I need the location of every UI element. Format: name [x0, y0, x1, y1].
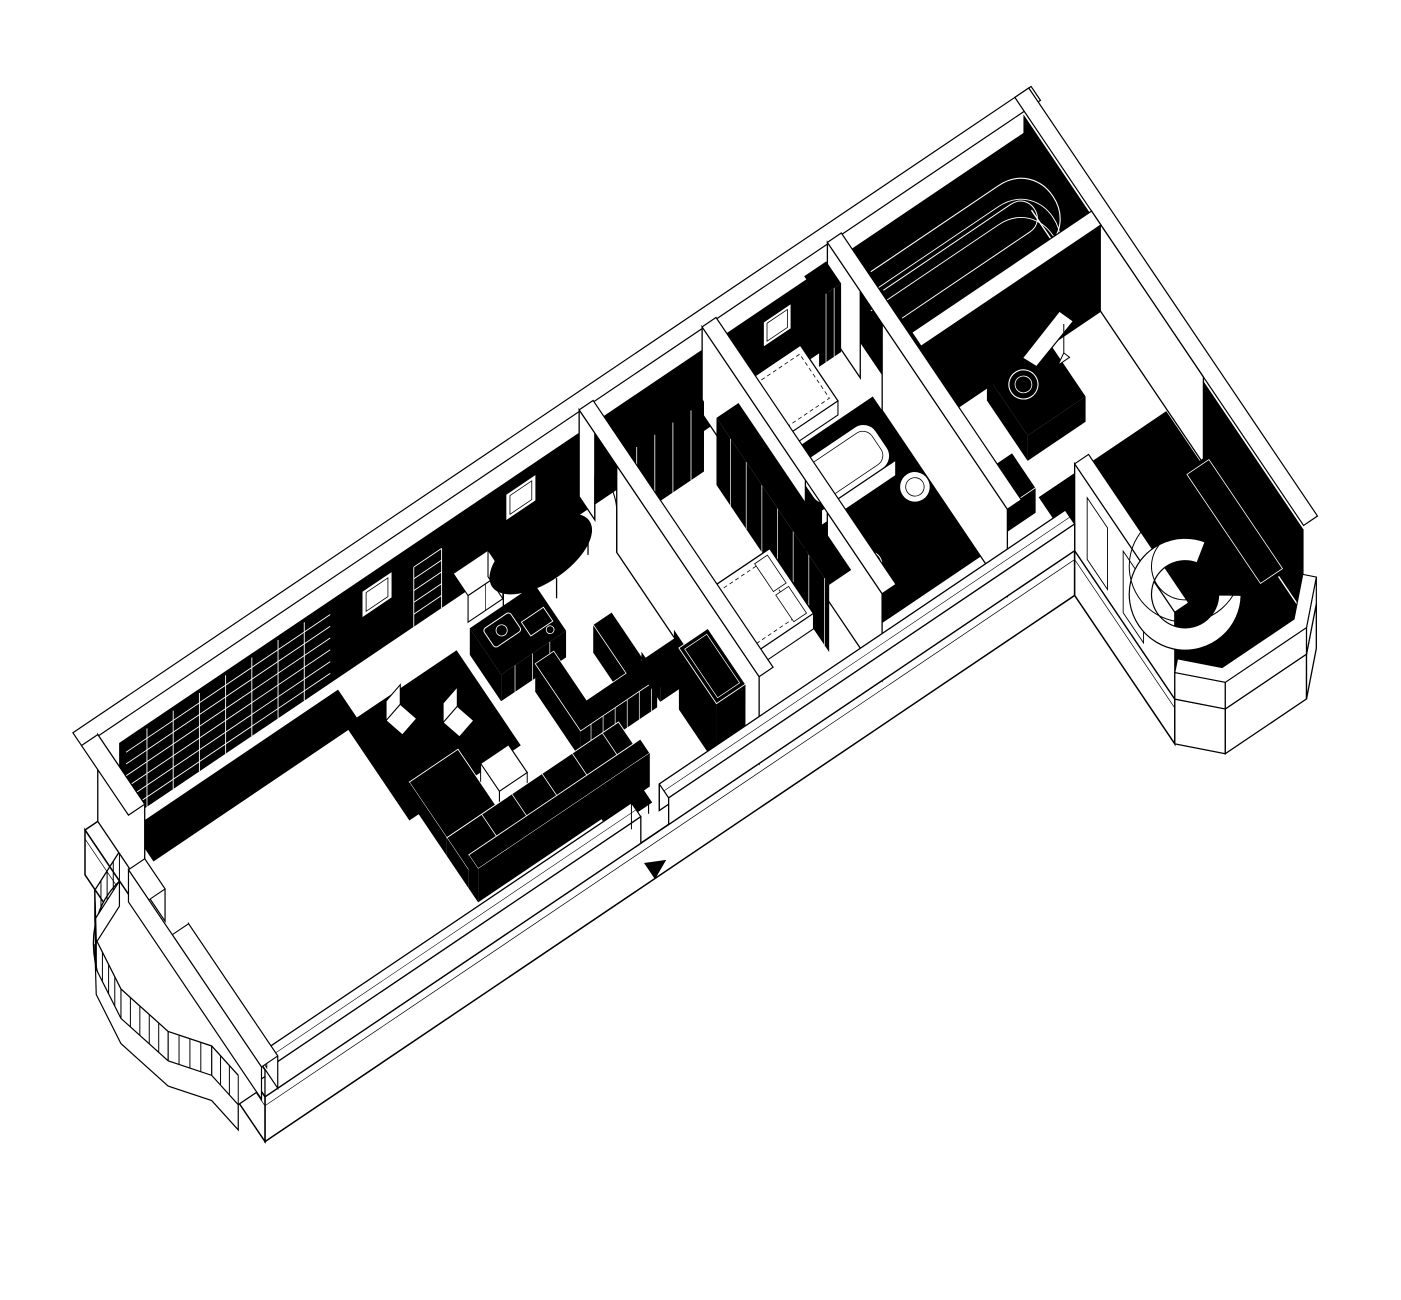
axonometric-floor-plan-drawing: Axonometric floor plan of an apartment	[0, 0, 1401, 1300]
axonometric-floor-plan-page: Axonometric floor plan of an apartment	[0, 0, 1401, 1300]
